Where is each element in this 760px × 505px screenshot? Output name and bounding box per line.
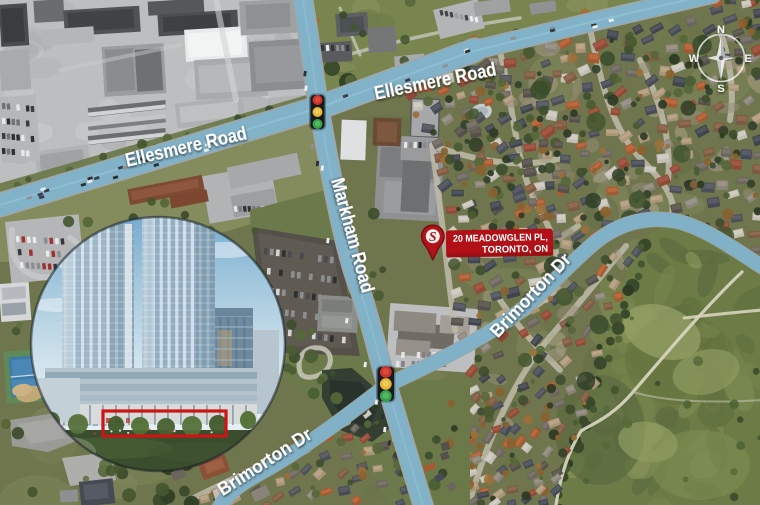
svg-text:S: S bbox=[429, 229, 437, 244]
svg-text:TORONTO, ON: TORONTO, ON bbox=[482, 244, 548, 256]
svg-text:N: N bbox=[717, 24, 725, 36]
svg-text:20 MEADOWGLEN PL,: 20 MEADOWGLEN PL, bbox=[453, 232, 548, 245]
svg-text:E: E bbox=[744, 53, 751, 65]
svg-text:W: W bbox=[689, 53, 700, 65]
svg-text:S: S bbox=[717, 83, 724, 95]
